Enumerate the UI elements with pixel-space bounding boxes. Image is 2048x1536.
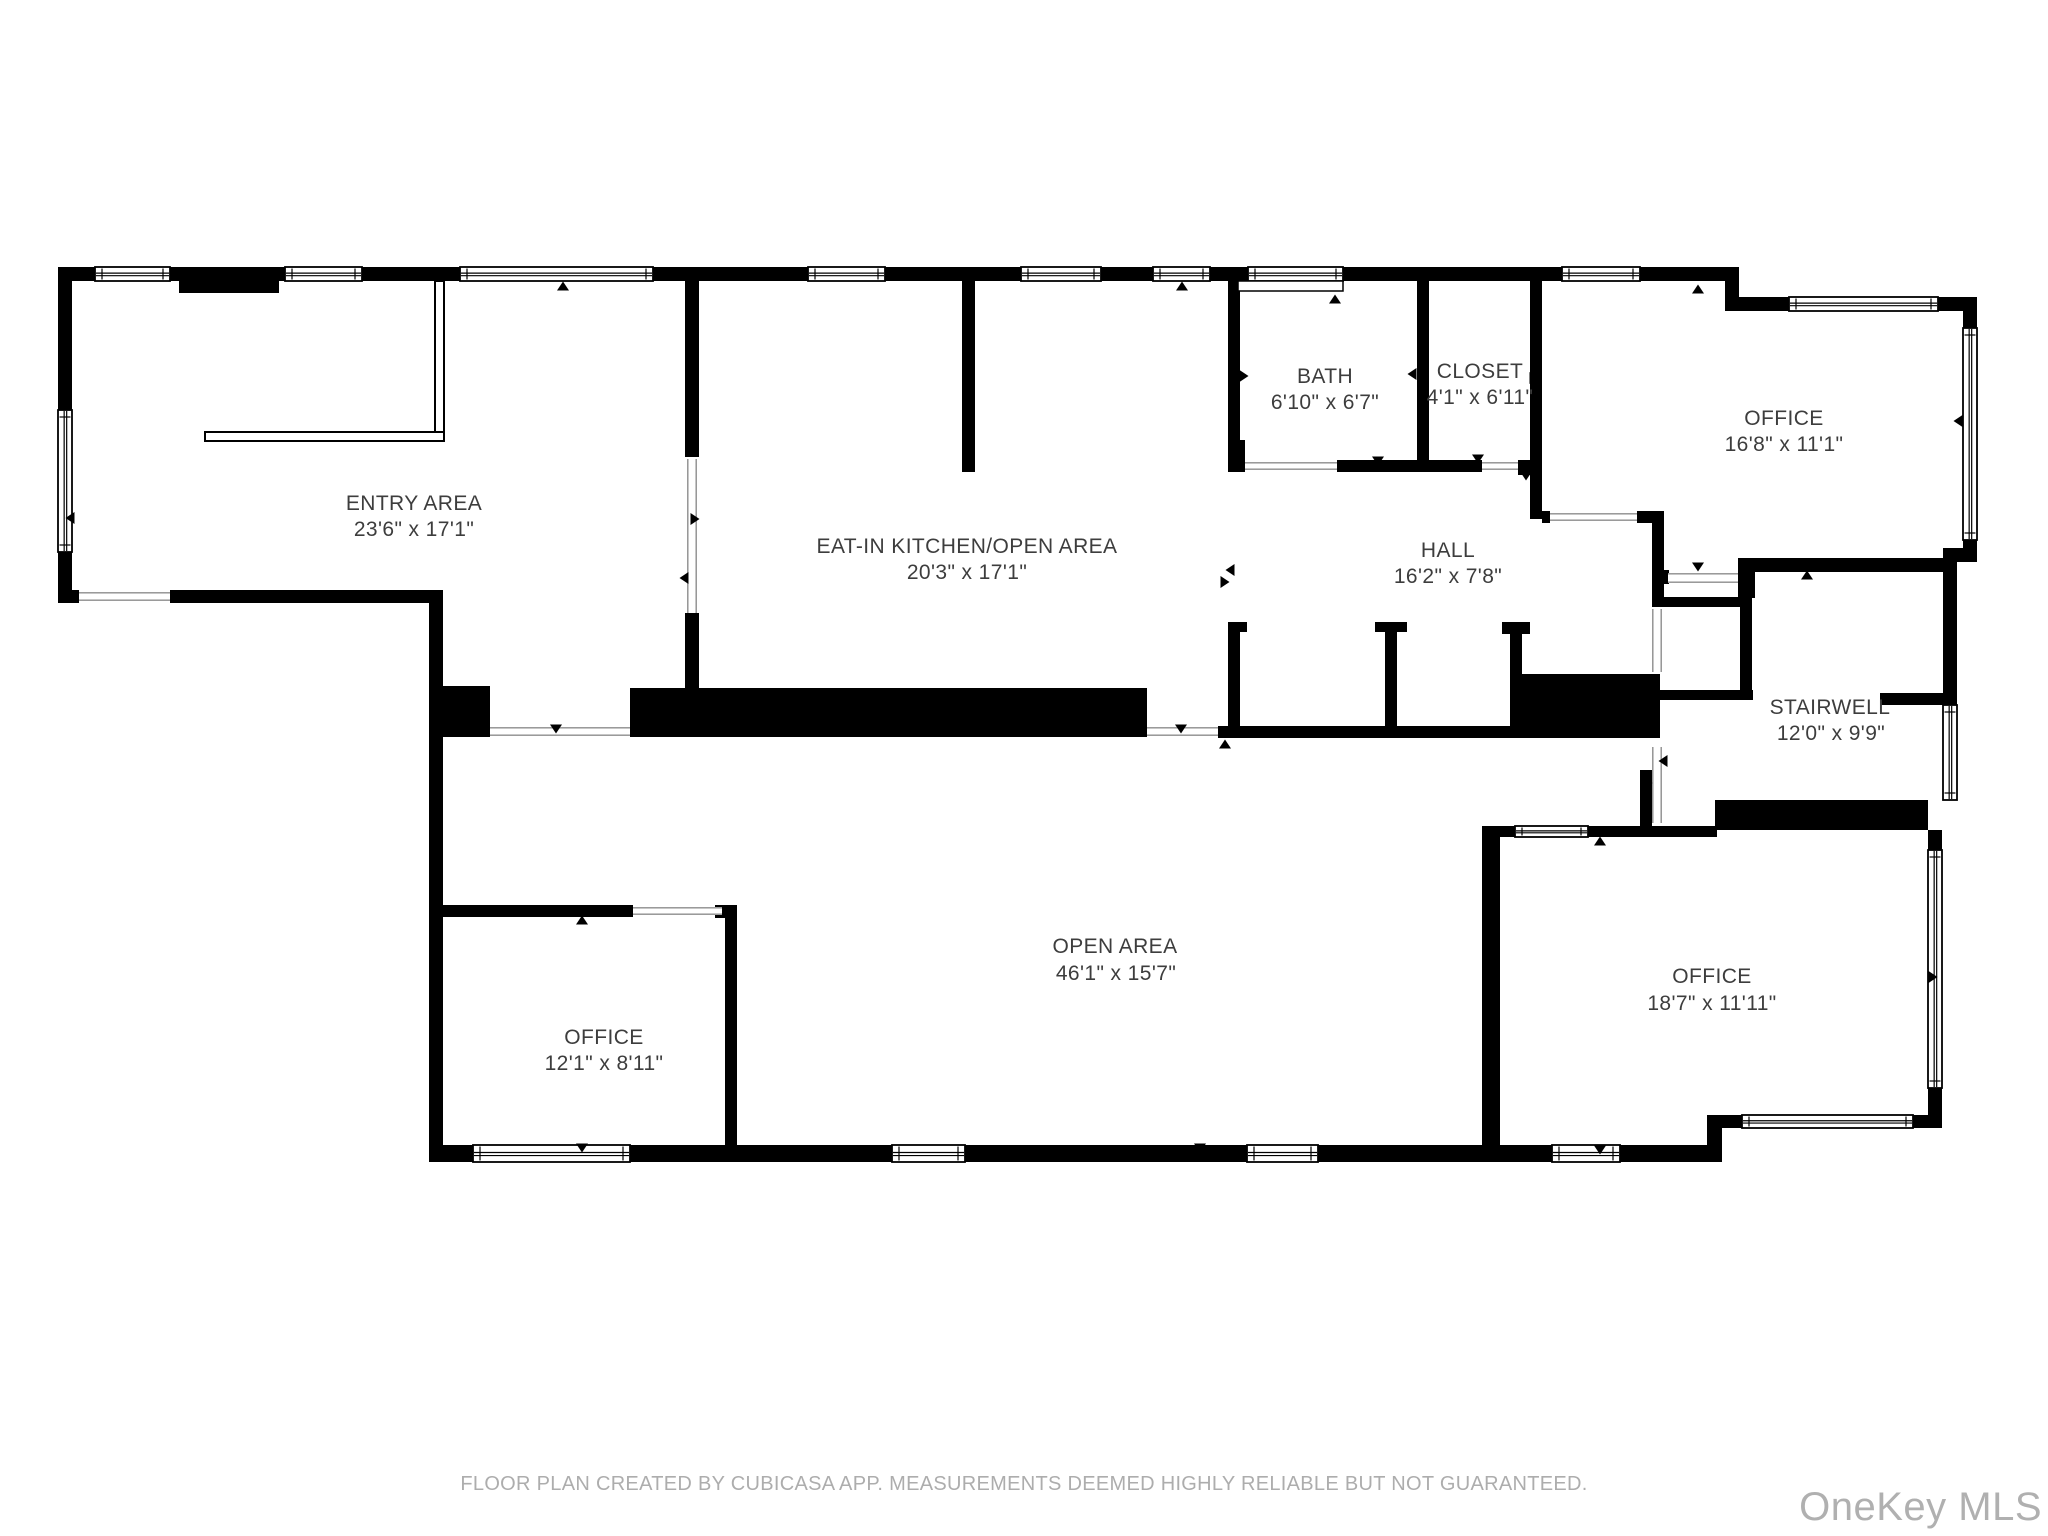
svg-text:12'0" x 9'9": 12'0" x 9'9" [1777,722,1885,745]
svg-text:HALL: HALL [1421,539,1475,562]
svg-text:OFFICE: OFFICE [1744,407,1823,430]
svg-text:16'2" x 7'8": 16'2" x 7'8" [1394,565,1502,588]
room-label-bath: BATH 6'10" x 6'7" [1271,365,1379,414]
svg-text:STAIRWELL: STAIRWELL [1770,696,1891,719]
walls [58,267,1977,1162]
svg-text:EAT-IN KITCHEN/OPEN AREA: EAT-IN KITCHEN/OPEN AREA [817,535,1118,558]
svg-text:BATH: BATH [1297,365,1353,388]
room-label-office-bottom-right: OFFICE 18'7" x 11'11" [1647,965,1776,1015]
floor-plan-svg: ENTRY AREA 23'6" x 17'1" EAT-IN KITCHEN/… [0,0,2048,1536]
svg-text:ENTRY AREA: ENTRY AREA [346,492,482,515]
svg-text:12'1" x 8'11": 12'1" x 8'11" [545,1052,664,1075]
room-label-stairwell: STAIRWELL 12'0" x 9'9" [1770,696,1891,745]
room-label-hall: HALL 16'2" x 7'8" [1394,539,1502,588]
room-label-eat-in-kitchen-open-area: EAT-IN KITCHEN/OPEN AREA 20'3" x 17'1" [817,535,1118,584]
entry-partition [205,281,444,441]
room-label-open-area: OPEN AREA 46'1" x 15'7" [1053,935,1178,985]
svg-text:18'7" x 11'11": 18'7" x 11'11" [1647,992,1776,1015]
room-label-closet: CLOSET 4'1" x 6'11" [1427,360,1534,409]
footer-note: FLOOR PLAN CREATED BY CUBICASA APP. MEAS… [0,1473,2048,1496]
svg-text:OFFICE: OFFICE [1672,965,1751,988]
svg-text:6'10" x 6'7": 6'10" x 6'7" [1271,391,1379,414]
svg-text:23'6" x 17'1": 23'6" x 17'1" [354,518,474,541]
svg-text:16'8" x 11'1": 16'8" x 11'1" [1725,433,1844,456]
svg-text:CLOSET: CLOSET [1437,360,1523,383]
svg-text:4'1" x 6'11": 4'1" x 6'11" [1427,386,1534,409]
room-label-entry-area: ENTRY AREA 23'6" x 17'1" [346,492,482,541]
watermark: OneKey MLS [1799,1485,2042,1530]
room-label-office-top-right: OFFICE 16'8" x 11'1" [1725,407,1844,456]
svg-text:OPEN AREA: OPEN AREA [1053,935,1178,958]
svg-text:46'1" x 15'7": 46'1" x 15'7" [1056,962,1176,985]
svg-text:OFFICE: OFFICE [564,1026,643,1049]
room-label-office-bottom-left: OFFICE 12'1" x 8'11" [545,1026,664,1075]
svg-text:20'3" x 17'1": 20'3" x 17'1" [907,561,1027,584]
